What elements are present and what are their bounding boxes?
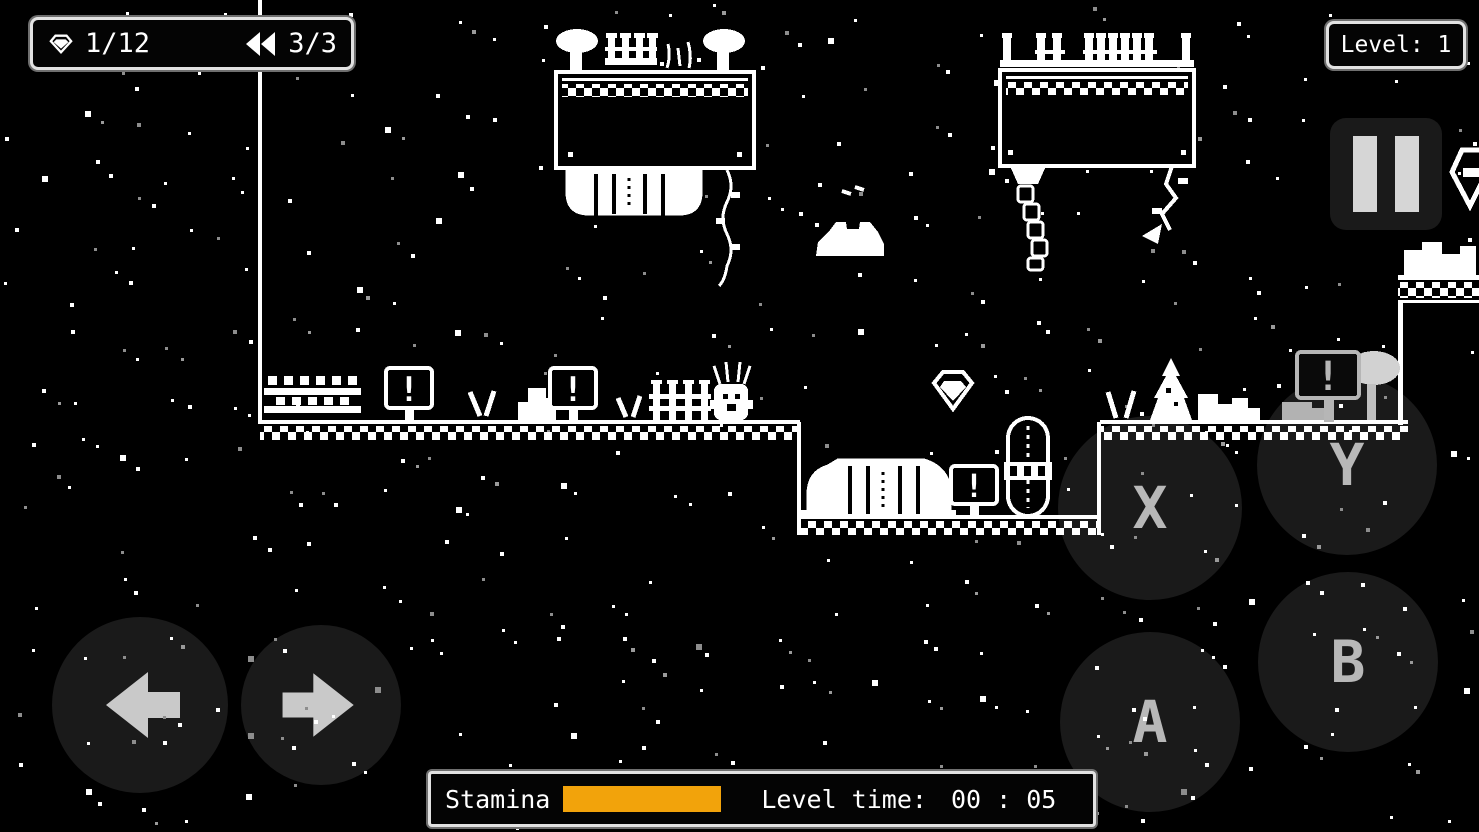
counters-badge: 1/12 3/3 (30, 17, 354, 70)
gem-counter: 1/12 (85, 28, 150, 59)
rewind-counter: 3/3 (288, 28, 337, 59)
level-time-label: Level time: (761, 785, 927, 814)
level-badge: Level: 1 (1326, 21, 1466, 69)
stamina-label: Stamina (445, 785, 550, 814)
pause-icon (1353, 136, 1377, 212)
pause-button[interactable] (1330, 118, 1442, 230)
rewind-icon (244, 31, 278, 57)
level-time-value: 00 : 05 (951, 785, 1056, 814)
gem-icon (47, 32, 75, 56)
status-bar: Stamina Level time: 00 : 05 (428, 771, 1096, 827)
pause-icon (1395, 136, 1419, 212)
stamina-bar-fill (563, 786, 721, 812)
stamina-bar (563, 786, 721, 812)
level-label: Level: 1 (1341, 32, 1452, 58)
hud-layer: 1/12 3/3 Level: 1 Stamina Level time: 00… (0, 0, 1479, 832)
